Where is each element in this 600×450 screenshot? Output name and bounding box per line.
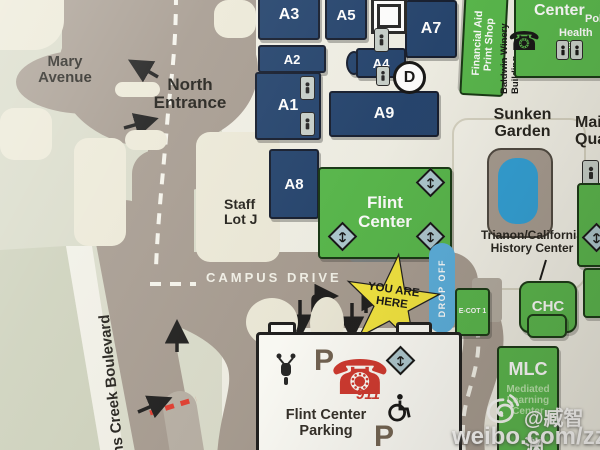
statue-icon (376, 66, 390, 86)
campus-phone-icon: ☎ (508, 28, 540, 54)
statue-icon (374, 28, 389, 52)
building-e-cot-1-label: E-COT 1 (459, 308, 487, 316)
statue-icon (300, 76, 315, 100)
campus-map-photo: Mary Avenue North Entrance Staff Lot J C… (0, 0, 600, 450)
building-e-cot-1: E-COT 1 (455, 288, 490, 336)
motorcycle-icon (274, 352, 298, 391)
building-a7: A7 (405, 0, 457, 58)
landscape-patch (214, 0, 256, 38)
campus-center-label: Center (534, 2, 585, 20)
building-a3-label: A3 (279, 6, 299, 24)
landscape-patch (0, 108, 52, 160)
building-chc-label: CHC (532, 299, 565, 316)
chc-pointer-line (540, 260, 546, 280)
shuttle-stop-d: D (393, 61, 426, 94)
building-a7-label: A7 (421, 20, 441, 38)
shuttle-stop-d-label: D (404, 69, 416, 87)
restroom-icon (556, 40, 569, 60)
building-a2-label: A2 (284, 52, 301, 67)
building-a3: A3 (258, 0, 320, 40)
watermark-url: weibo.com/zzyln (452, 423, 600, 450)
median-island (125, 130, 167, 150)
you-are-here-label: YOU ARE HERE (359, 280, 426, 315)
building-a8: A8 (269, 149, 319, 219)
street-label-campus-drive: CAMPUS DRIVE (206, 270, 342, 285)
building-a1-label: A1 (278, 97, 298, 115)
building-a9-label: A9 (374, 105, 394, 123)
building-mlc-label: MLC (509, 360, 548, 380)
main-quad-label: Main Quad (575, 114, 600, 149)
statue-icon (300, 112, 315, 136)
restroom-icon (570, 40, 583, 60)
campus-center-police-label: Poli (585, 13, 600, 25)
building-a8-label: A8 (284, 176, 303, 193)
main-quad-building (583, 268, 600, 318)
building-a2: A2 (258, 45, 326, 73)
building-a5-label: A5 (336, 7, 355, 24)
emergency-911-label: 911 (356, 386, 380, 403)
building-a5: A5 (325, 0, 367, 40)
street-label-north-entrance: North Entrance (140, 76, 240, 113)
parking-building-label: Flint Center Parking (266, 408, 386, 439)
building-a9: A9 (329, 91, 439, 137)
street-label-mary-avenue: Mary Avenue (25, 54, 105, 86)
small-green-building (527, 314, 567, 338)
sunken-garden-pond (498, 158, 538, 224)
sunken-garden-label: Sunken Garden (470, 106, 575, 141)
